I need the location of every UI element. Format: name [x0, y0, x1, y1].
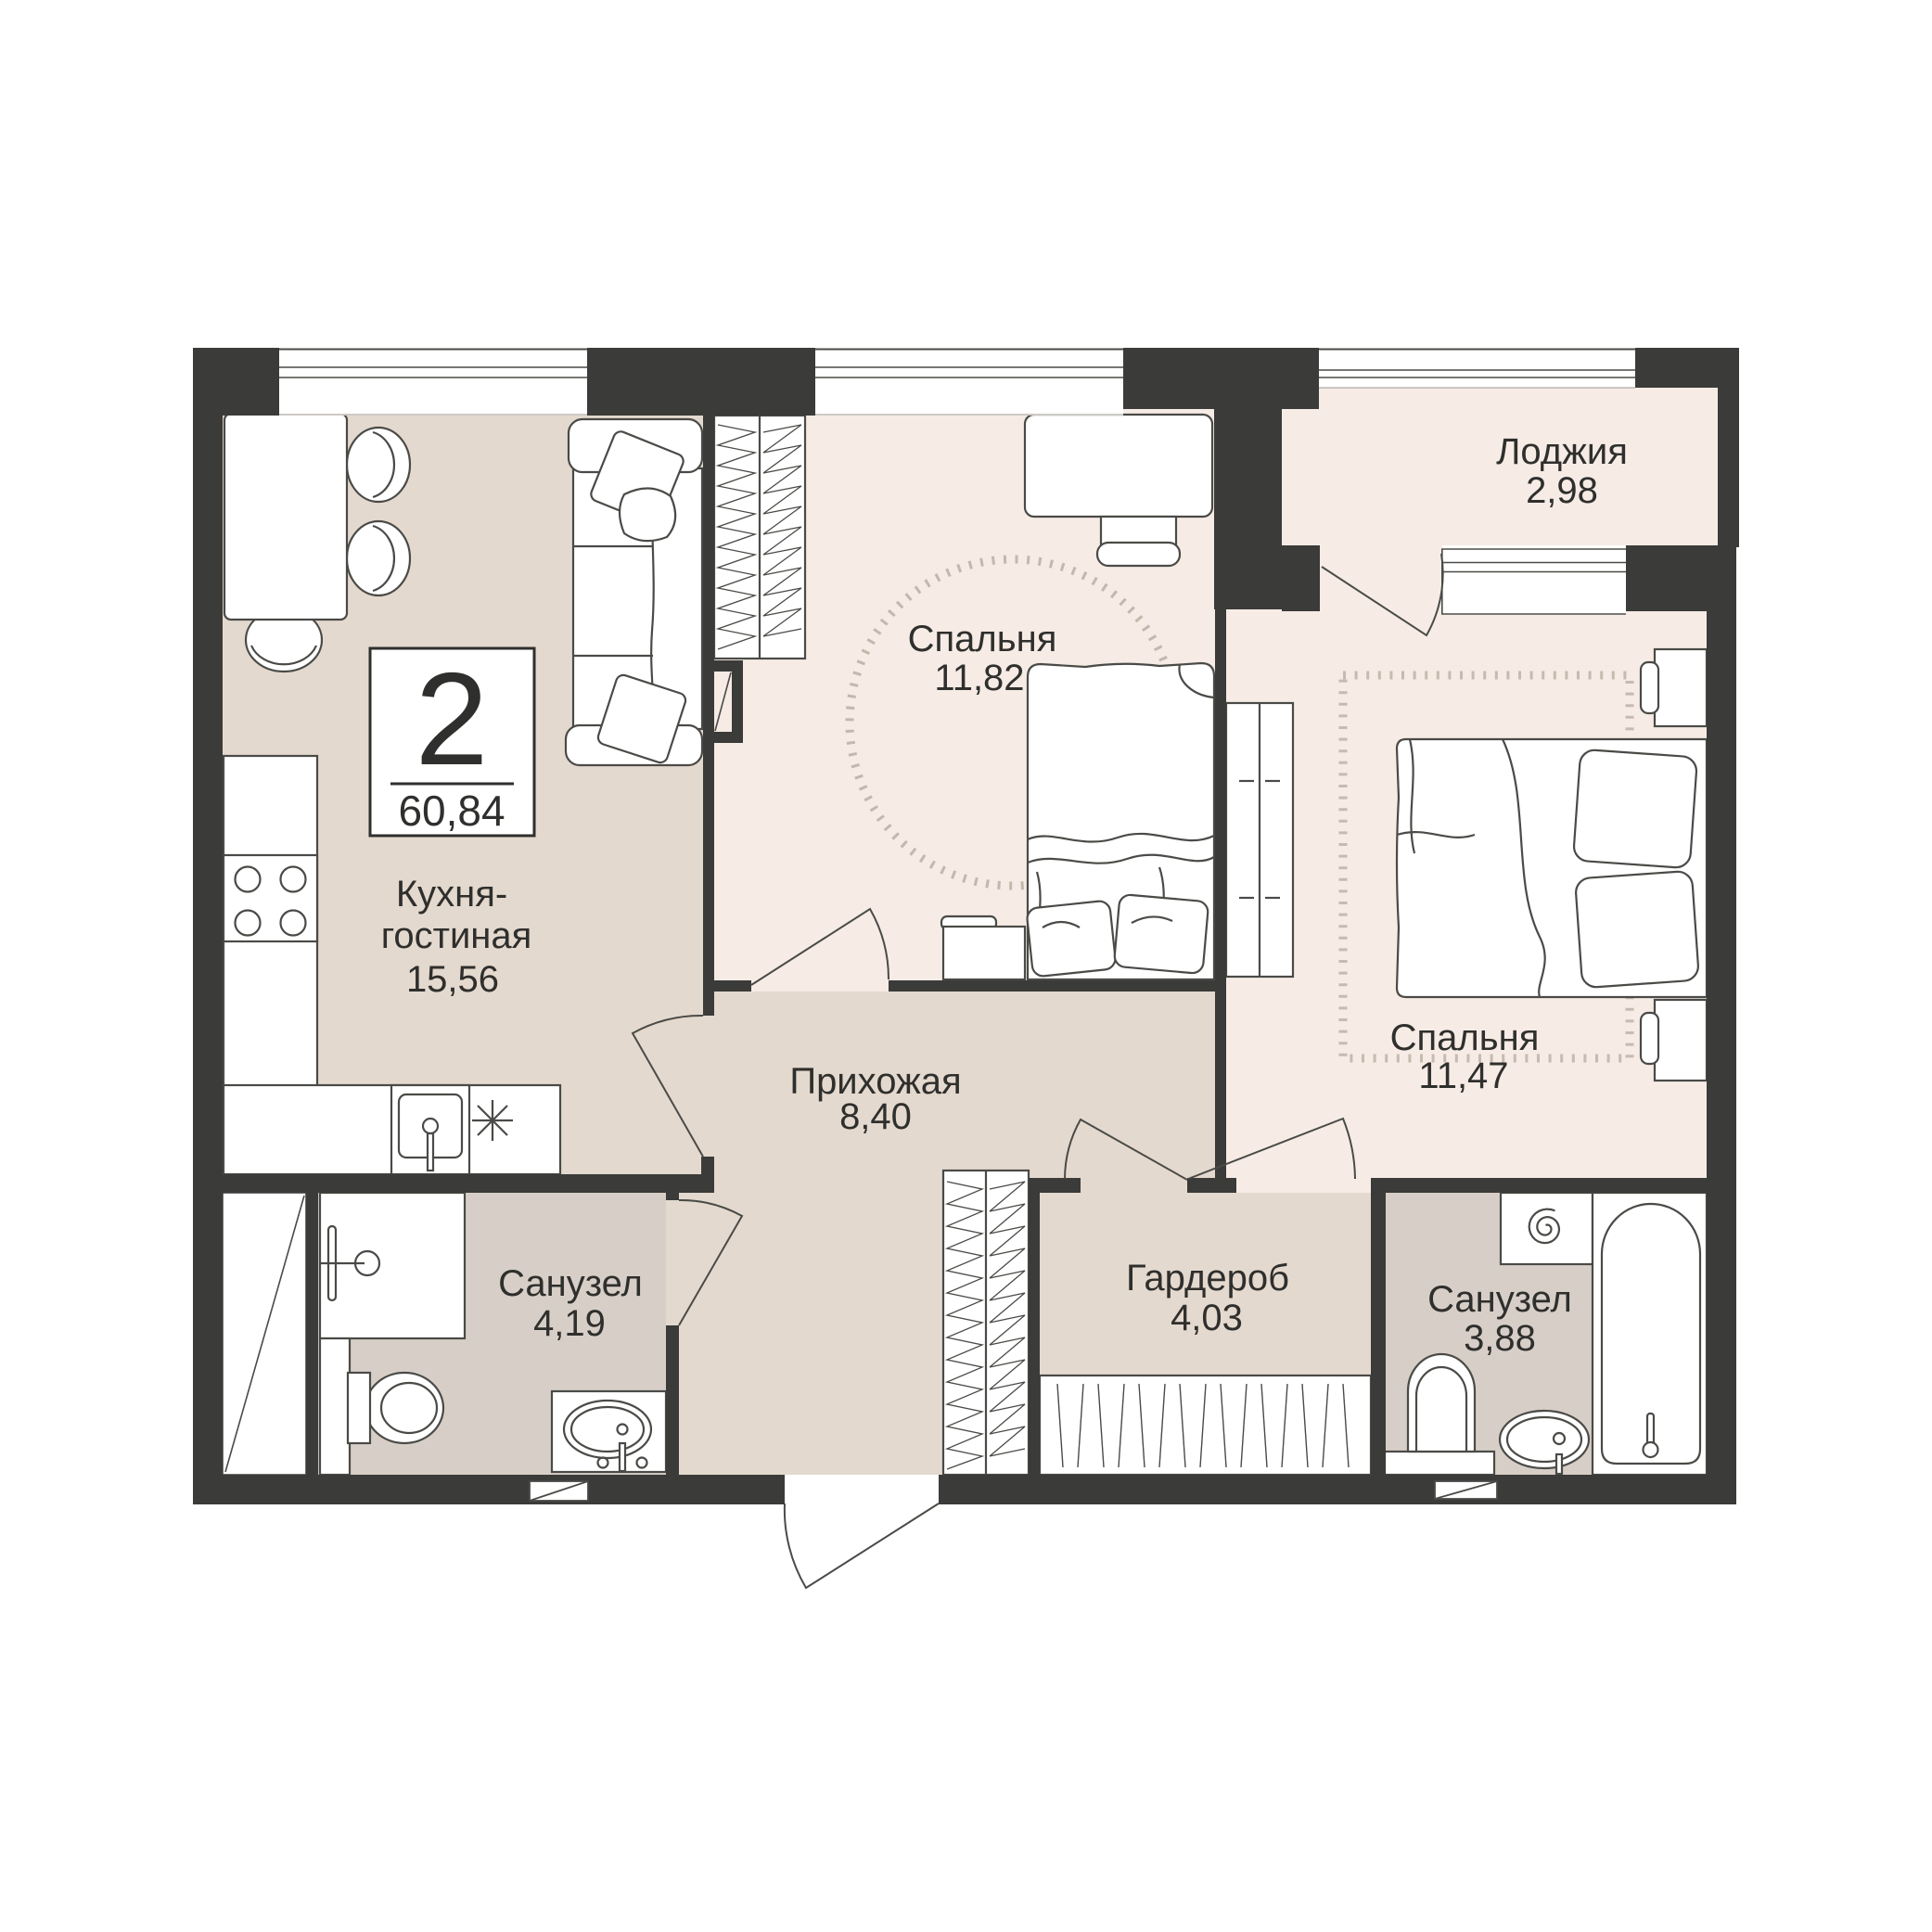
svg-text:Санузел: Санузел [1427, 1279, 1572, 1320]
svg-text:8,40: 8,40 [839, 1096, 912, 1137]
svg-text:2,98: 2,98 [1526, 470, 1598, 511]
svg-text:гостиная: гостиная [381, 915, 532, 956]
svg-text:15,56: 15,56 [406, 959, 499, 1000]
svg-text:11,47: 11,47 [1418, 1056, 1508, 1096]
svg-text:Гардероб: Гардероб [1126, 1258, 1289, 1299]
svg-text:4,03: 4,03 [1171, 1298, 1243, 1338]
svg-text:11,82: 11,82 [934, 658, 1024, 698]
svg-text:Спальня: Спальня [908, 619, 1057, 659]
svg-text:4,19: 4,19 [533, 1303, 606, 1344]
svg-text:2: 2 [416, 646, 489, 793]
svg-text:Спальня: Спальня [1390, 1017, 1540, 1058]
svg-text:3,88: 3,88 [1464, 1318, 1536, 1359]
svg-text:Кухня-: Кухня- [396, 874, 507, 915]
svg-text:60,84: 60,84 [398, 787, 505, 835]
svg-text:Санузел: Санузел [498, 1263, 643, 1304]
svg-text:Лоджия: Лоджия [1496, 431, 1628, 472]
